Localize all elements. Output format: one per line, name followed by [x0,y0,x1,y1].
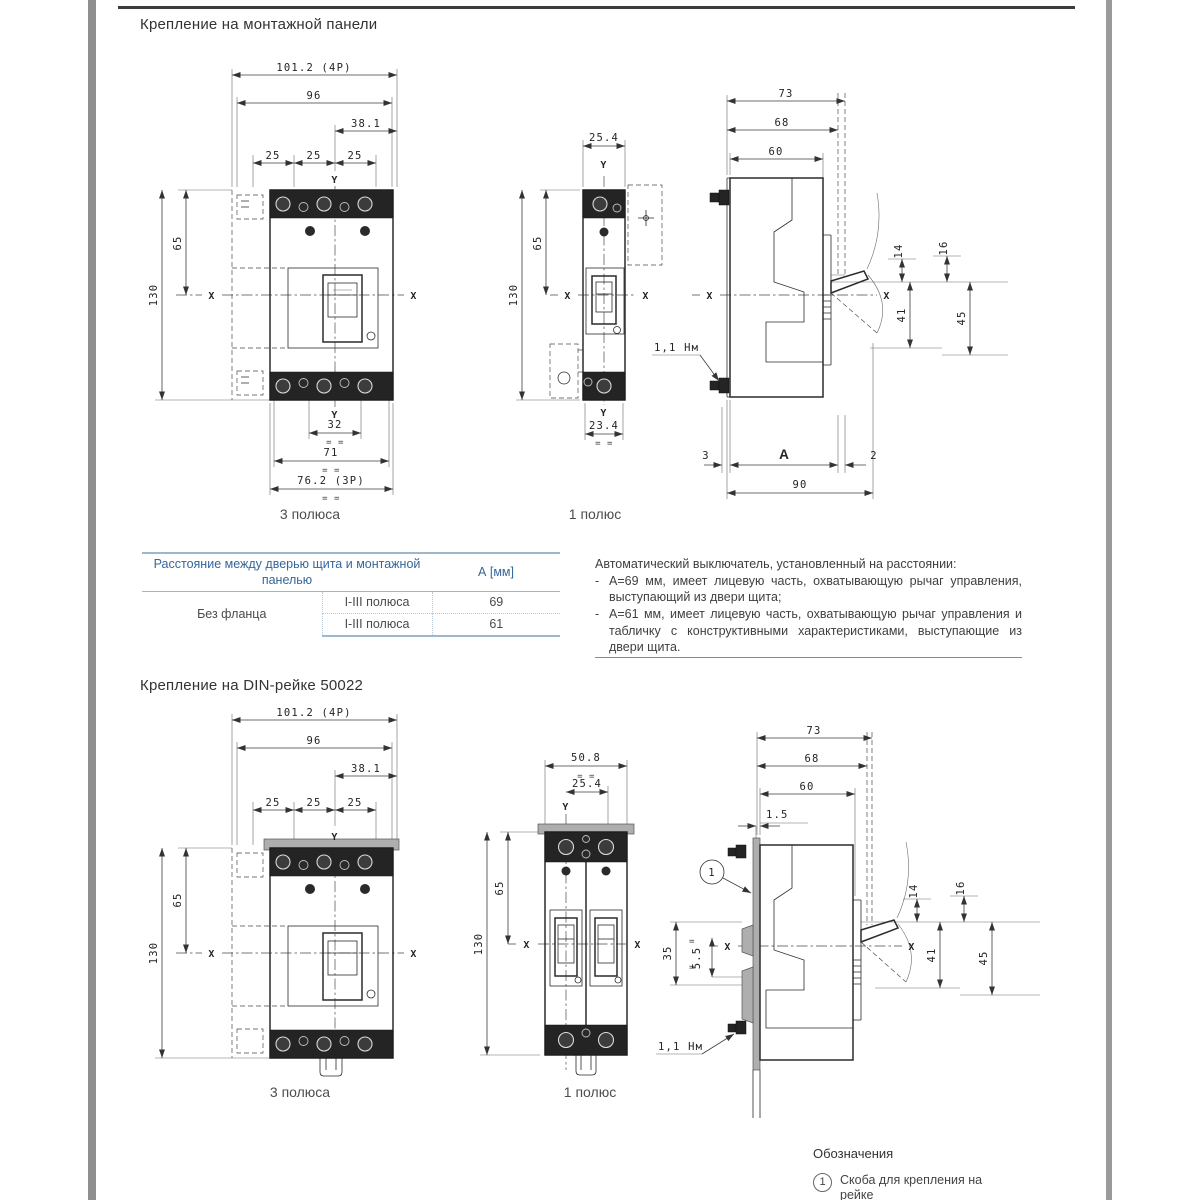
dim-label: 96 [306,735,321,747]
note-item: - А=61 мм, имеет лицевую часть, охватыва… [595,606,1022,656]
torque-label: 1,1 Нм [654,342,699,354]
note-intro: Автоматический выключатель, установленны… [595,556,1022,573]
dim-label: 1.5 [766,809,789,821]
legend-title: Обозначения [813,1146,1063,1161]
axis-x-label: X [564,291,571,302]
dimensions: 101.2 (4P) 96 38.1 25 25 25 65 130 32 = … [148,62,418,504]
dim-label: 76.2 (3P) [297,475,365,487]
table-cell-group: Без фланца [142,592,322,637]
callout-number: 1 [708,867,716,879]
breaker-body [545,832,627,1055]
dim-label: 25.4 [589,132,619,144]
dim-label: 45 [956,310,968,325]
equal-mark: = [689,937,695,947]
dim-label: 16 [938,240,950,255]
view-label-3pole: 3 полюса [240,506,380,522]
axis-x-label: X [706,291,713,302]
dim-label: 25 [265,797,280,809]
dim-label: 65 [494,880,506,895]
din-rail [742,838,760,1118]
dim-label: 35 [662,945,674,960]
dim-label: 130 [473,933,485,956]
dim-label: 65 [172,892,184,907]
dim-label: A [779,447,789,462]
dim-label: 38.1 [351,118,381,130]
drawing-din-side: 1 73 68 60 1.5 35 = = 5.5 14 16 41 [640,720,1060,1135]
extension-lines [155,69,397,495]
dim-label: 25 [306,797,321,809]
axis-y-label: Y [331,410,338,421]
axis-x-label: X [208,949,215,960]
callout-1: 1 [700,860,751,893]
dim-label: 41 [896,307,908,322]
drawing-panel-side: 73 68 60 14 16 41 45 3 A 2 90 X X 1,1 Нм [640,85,1040,505]
dim-label: 45 [978,950,990,965]
drawing-din-3pole-front: 101.2 (4P) 96 38.1 25 25 25 65 130 X X Y [140,700,480,1100]
dim-label: 25 [265,150,280,162]
equal-mark: = = [322,494,340,504]
dim-label: 65 [532,235,544,250]
dim-label: 5.5 [691,947,703,970]
dim-label: 3 [702,450,710,462]
dim-label: 60 [768,146,783,158]
dimensions: 101.2 (4P) 96 38.1 25 25 25 65 130 X X Y [148,707,418,1058]
note-divider [595,657,1022,658]
dim-label: 16 [955,880,967,895]
top-rule [118,6,1075,9]
torque-label: 1,1 Нм [658,1041,703,1053]
table-cell-poles: I-III полюса [322,614,432,637]
legend-item: 1 Скоба для крепления на рейке [813,1173,1063,1200]
axis-y-label: Y [600,160,607,171]
dim-label: 101.2 (4P) [276,707,351,719]
drawing-panel-3pole-front: 101.2 (4P) 96 38.1 25 25 25 65 130 32 = … [140,55,480,530]
dim-label: 38.1 [351,763,381,775]
dim-label: 130 [148,284,160,307]
dim-label: 73 [806,725,821,737]
table-cell-value: 69 [432,592,560,614]
dim-label: 2 [870,450,878,462]
axis-x-label: X [410,291,417,302]
dim-label: 14 [893,243,905,258]
note-item: - А=69 мм, имеет лицевую часть, охватыва… [595,573,1022,606]
axis-x-label: X [724,942,731,953]
section1-title: Крепление на монтажной панели [140,16,377,33]
dim-label: 101.2 (4P) [276,62,351,74]
dim-label: 90 [792,479,807,491]
axis-y-label: Y [562,802,569,813]
view-label-1pole-din: 1 полюс [530,1084,650,1100]
dim-label: 60 [799,781,814,793]
bullet-dash: - [595,606,609,656]
table-cell-poles: I-III полюса [322,592,432,614]
dim-label: 25 [347,797,362,809]
datasheet-page: Крепление на монтажной панели [0,0,1200,1200]
dim-label: 68 [774,117,789,129]
dim-label: 50.8 [571,752,601,764]
dimensions: 25.4 65 130 23.4 = = X X Y Y [508,132,650,449]
page-edge-right [1106,0,1112,1200]
axis-x-label: X [410,949,417,960]
axis-x-label: X [908,942,915,953]
section2-title: Крепление на DIN-рейке 50022 [140,677,363,694]
legend: Обозначения 1 Скоба для крепления на рей… [813,1146,1063,1200]
dimensions: 73 68 60 14 16 41 45 3 A 2 90 X X 1,1 Нм [652,88,970,493]
dim-label: 65 [172,235,184,250]
legend-item-number: 1 [813,1173,832,1192]
view-label-1pole: 1 полюс [540,506,650,522]
dim-label: 130 [148,942,160,965]
dim-label: 41 [926,947,938,962]
table-row: Без фланца I-III полюса 69 [142,592,560,614]
table-header-distance: Расстояние между дверью щита и монтажной… [142,553,432,592]
dimensions: 73 68 60 1.5 35 = = 5.5 14 16 41 45 X X … [656,725,992,1054]
dim-label: 130 [508,284,520,307]
dim-label: 96 [306,90,321,102]
dim-label: 23.4 [589,420,619,432]
bullet-dash: - [595,573,609,606]
axis-y-label: Y [331,175,338,186]
axis-x-label: X [523,940,530,951]
dim-label: 25 [347,150,362,162]
view-label-3pole-din: 3 полюса [230,1084,370,1100]
table-header-a-mm: А [мм] [432,553,560,592]
dim-label: 73 [778,88,793,100]
dim-label: 25 [306,150,321,162]
dimensions: 50.8 = = 25.4 65 130 X X Y [473,752,642,1055]
legend-item-text: Скоба для крепления на рейке [840,1173,1015,1200]
note-block: Автоматический выключатель, установленны… [595,556,1022,656]
distance-table: Расстояние между дверью щита и монтажной… [142,552,560,637]
panel-and-breaker [710,93,883,397]
axis-y-label: Y [600,408,607,419]
dim-label: 14 [908,883,920,898]
axis-x-label: X [208,291,215,302]
dim-label: 71 [323,447,338,459]
dim-label: 68 [804,753,819,765]
equal-mark: = = [595,439,613,449]
table-cell-value: 61 [432,614,560,637]
axis-x-label: X [883,291,890,302]
dim-label: 25.4 [572,778,602,790]
axis-y-label: Y [331,832,338,843]
page-edge-left [88,0,96,1200]
